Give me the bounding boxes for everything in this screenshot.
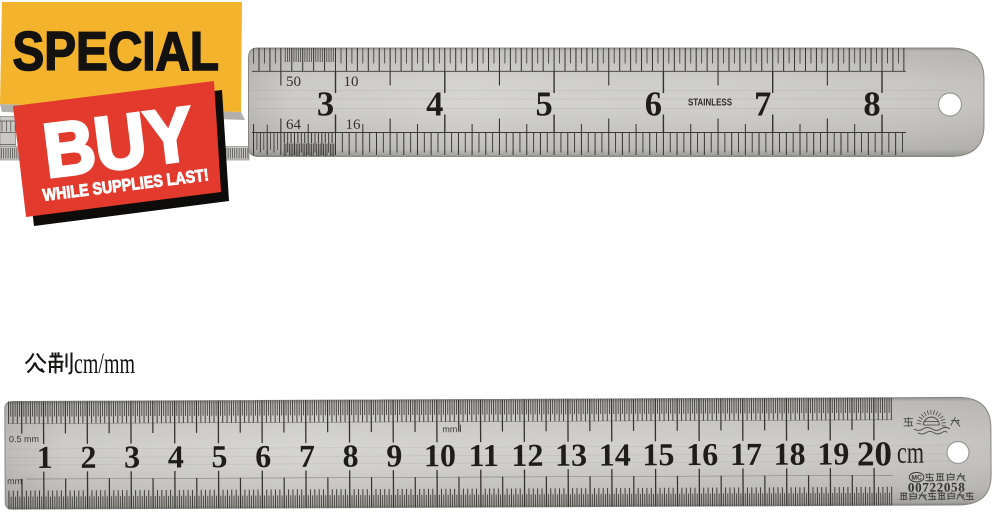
svg-text:cm: cm [897, 435, 924, 470]
svg-text:cm/mm: cm/mm [74, 347, 135, 380]
svg-text:3: 3 [124, 439, 140, 475]
svg-text:15: 15 [642, 436, 674, 472]
svg-text:mm: mm [442, 424, 457, 434]
svg-text:11: 11 [469, 437, 499, 473]
svg-text:5: 5 [535, 86, 552, 124]
svg-text:1: 1 [37, 439, 53, 475]
svg-text:2: 2 [80, 439, 96, 475]
svg-text:STAINLESS: STAINLESS [688, 98, 732, 109]
svg-text:3: 3 [317, 86, 334, 124]
svg-text:00722058: 00722058 [908, 479, 966, 494]
svg-text:9: 9 [386, 437, 402, 473]
svg-text:10: 10 [344, 74, 359, 90]
svg-text:16: 16 [686, 436, 718, 472]
svg-text:20: 20 [857, 434, 892, 473]
svg-text:18: 18 [774, 436, 806, 472]
svg-text:8: 8 [343, 438, 359, 474]
svg-text:mm: mm [7, 476, 22, 486]
svg-text:50: 50 [286, 74, 301, 90]
svg-text:6: 6 [255, 438, 271, 474]
svg-text:4: 4 [168, 438, 184, 474]
svg-text:6: 6 [645, 86, 662, 124]
svg-text:5: 5 [211, 438, 227, 474]
svg-text:19: 19 [817, 435, 849, 471]
svg-text:10: 10 [424, 437, 456, 473]
svg-text:14: 14 [599, 436, 631, 472]
svg-text:SPECIAL: SPECIAL [13, 20, 220, 82]
svg-text:12: 12 [511, 437, 543, 473]
svg-text:7: 7 [299, 438, 315, 474]
svg-text:4: 4 [426, 86, 443, 124]
svg-text:17: 17 [730, 436, 762, 472]
svg-text:7: 7 [754, 86, 771, 124]
svg-text:0.5 mm: 0.5 mm [9, 434, 39, 444]
svg-text:64: 64 [286, 117, 302, 133]
svg-text:8: 8 [863, 86, 880, 124]
svg-text:13: 13 [555, 437, 587, 473]
svg-text:16: 16 [346, 117, 362, 133]
